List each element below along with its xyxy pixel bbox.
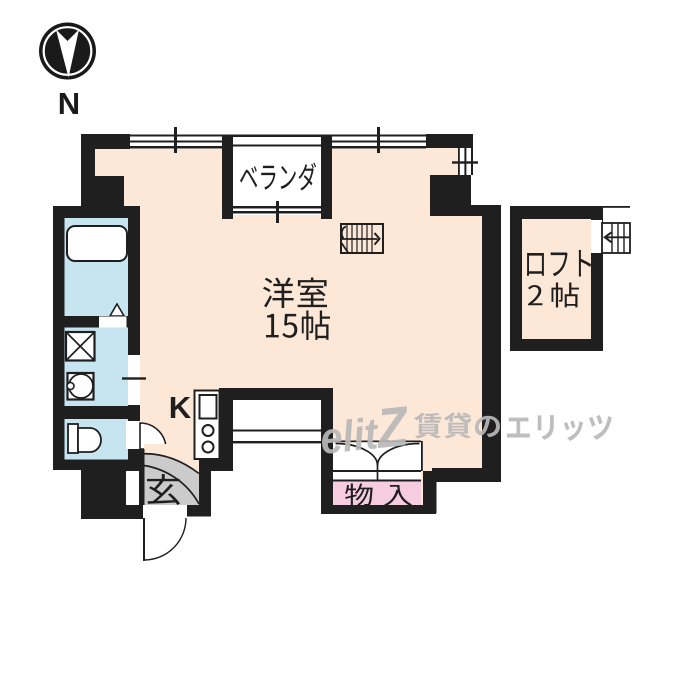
svg-text:K: K xyxy=(169,390,192,425)
svg-text:N: N xyxy=(58,86,80,121)
